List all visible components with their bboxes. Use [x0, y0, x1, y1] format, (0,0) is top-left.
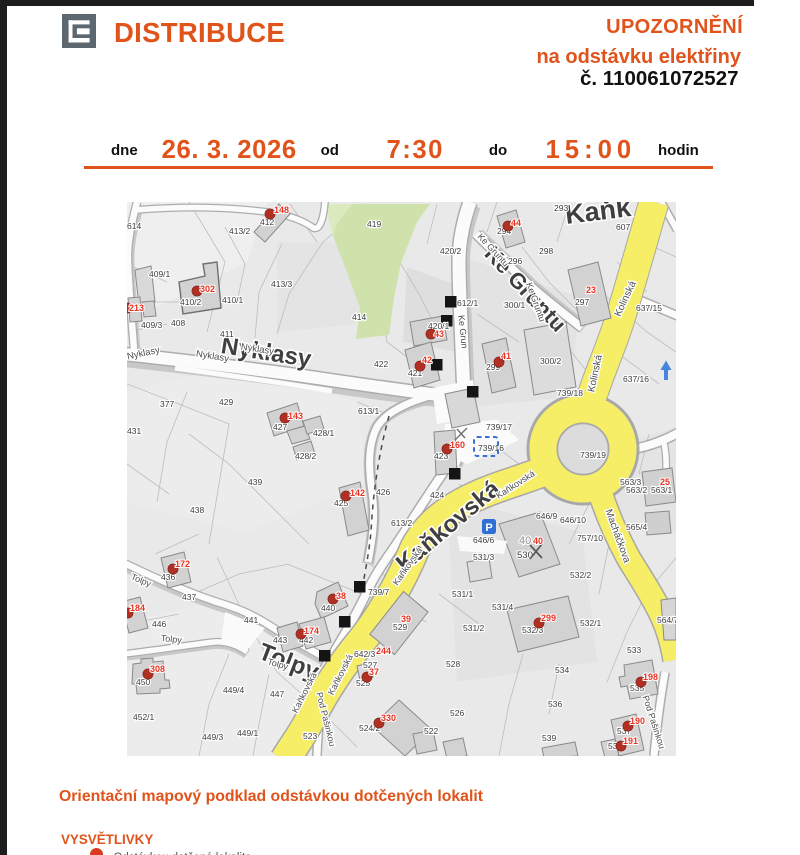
svg-text:449/4: 449/4 [223, 685, 245, 695]
svg-text:413/3: 413/3 [271, 279, 293, 289]
svg-text:293: 293 [554, 203, 568, 213]
svg-text:160: 160 [450, 440, 465, 450]
svg-text:539: 539 [542, 733, 556, 743]
svg-text:533: 533 [627, 645, 641, 655]
svg-text:43: 43 [434, 329, 444, 339]
svg-text:377: 377 [160, 399, 174, 409]
svg-text:244: 244 [376, 646, 391, 656]
svg-text:443: 443 [273, 635, 287, 645]
svg-text:408: 408 [171, 318, 185, 328]
svg-text:739/16: 739/16 [478, 443, 504, 453]
svg-text:422: 422 [374, 359, 388, 369]
svg-text:739/7: 739/7 [368, 587, 390, 597]
svg-text:409/3: 409/3 [141, 320, 163, 330]
svg-text:298: 298 [539, 246, 553, 256]
svg-text:757/10: 757/10 [577, 533, 603, 543]
svg-text:637/16: 637/16 [623, 374, 649, 384]
svg-text:440: 440 [321, 603, 335, 613]
svg-text:44: 44 [511, 218, 521, 228]
svg-text:424: 424 [430, 490, 444, 500]
svg-text:413/2: 413/2 [229, 226, 251, 236]
svg-text:330: 330 [381, 713, 396, 723]
svg-text:522: 522 [424, 726, 438, 736]
svg-text:142: 142 [350, 488, 365, 498]
svg-text:420/2: 420/2 [440, 246, 462, 256]
svg-text:308: 308 [150, 664, 165, 674]
svg-text:642/3: 642/3 [354, 649, 376, 659]
svg-text:410/1: 410/1 [222, 295, 244, 305]
svg-text:531/1: 531/1 [452, 589, 474, 599]
svg-text:614: 614 [127, 221, 141, 231]
svg-text:449/1: 449/1 [237, 728, 259, 738]
svg-text:523: 523 [303, 731, 317, 741]
svg-text:409/1: 409/1 [149, 269, 171, 279]
svg-text:646/6: 646/6 [473, 535, 495, 545]
svg-text:526: 526 [450, 708, 464, 718]
svg-text:213: 213 [129, 303, 144, 313]
svg-text:452/1: 452/1 [133, 712, 155, 722]
svg-text:447: 447 [270, 689, 284, 699]
svg-text:565/4: 565/4 [626, 522, 648, 532]
svg-text:439: 439 [248, 477, 262, 487]
svg-text:428/1: 428/1 [313, 428, 335, 438]
svg-text:446: 446 [152, 619, 166, 629]
svg-text:P: P [485, 522, 492, 534]
svg-text:143: 143 [288, 411, 303, 421]
svg-text:411: 411 [220, 329, 234, 339]
svg-text:528: 528 [446, 659, 460, 669]
svg-text:563/2: 563/2 [626, 485, 648, 495]
svg-text:172: 172 [175, 559, 190, 569]
svg-text:438: 438 [190, 505, 204, 515]
svg-text:431: 431 [127, 426, 141, 436]
svg-text:148: 148 [274, 205, 289, 215]
svg-text:429: 429 [219, 397, 233, 407]
svg-text:449/3: 449/3 [202, 732, 224, 742]
svg-text:613/1: 613/1 [358, 406, 380, 416]
svg-text:646/10: 646/10 [560, 515, 586, 525]
svg-text:25: 25 [660, 477, 670, 487]
svg-text:536: 536 [548, 699, 562, 709]
svg-text:174: 174 [304, 626, 319, 636]
svg-text:427: 427 [273, 422, 287, 432]
svg-text:40: 40 [519, 535, 531, 547]
svg-text:191: 191 [623, 736, 638, 746]
svg-text:564/7: 564/7 [657, 615, 676, 625]
svg-text:531/4: 531/4 [492, 602, 514, 612]
svg-text:299: 299 [541, 613, 556, 623]
svg-text:184: 184 [130, 603, 145, 613]
svg-text:302: 302 [200, 284, 215, 294]
svg-text:419: 419 [367, 219, 381, 229]
svg-text:531/3: 531/3 [473, 552, 495, 562]
svg-text:37: 37 [369, 667, 379, 677]
svg-text:300/1: 300/1 [504, 300, 526, 310]
svg-text:23: 23 [586, 285, 596, 295]
svg-text:637/15: 637/15 [636, 303, 662, 313]
svg-text:296: 296 [508, 256, 522, 266]
svg-text:531/2: 531/2 [463, 623, 485, 633]
svg-text:428/2: 428/2 [295, 451, 317, 461]
svg-text:534: 534 [555, 665, 569, 675]
svg-text:40: 40 [533, 536, 543, 546]
svg-text:198: 198 [643, 672, 658, 682]
svg-text:437: 437 [182, 592, 196, 602]
svg-text:613/2: 613/2 [391, 518, 413, 528]
svg-text:426: 426 [376, 487, 390, 497]
svg-text:532/1: 532/1 [580, 618, 602, 628]
svg-text:300/2: 300/2 [540, 356, 562, 366]
svg-text:410/2: 410/2 [180, 297, 202, 307]
svg-text:607: 607 [616, 222, 630, 232]
svg-text:739/19: 739/19 [580, 450, 606, 460]
svg-text:41: 41 [501, 351, 511, 361]
svg-text:297: 297 [575, 297, 589, 307]
svg-text:739/18: 739/18 [557, 388, 583, 398]
svg-text:42: 42 [422, 355, 432, 365]
svg-text:441: 441 [244, 615, 258, 625]
svg-text:39: 39 [401, 614, 411, 624]
svg-text:739/17: 739/17 [486, 422, 512, 432]
svg-text:612/1: 612/1 [457, 298, 479, 308]
svg-text:414: 414 [352, 312, 366, 322]
svg-text:532/2: 532/2 [570, 570, 592, 580]
svg-text:646/9: 646/9 [536, 511, 558, 521]
svg-text:38: 38 [336, 591, 346, 601]
svg-text:190: 190 [630, 716, 645, 726]
